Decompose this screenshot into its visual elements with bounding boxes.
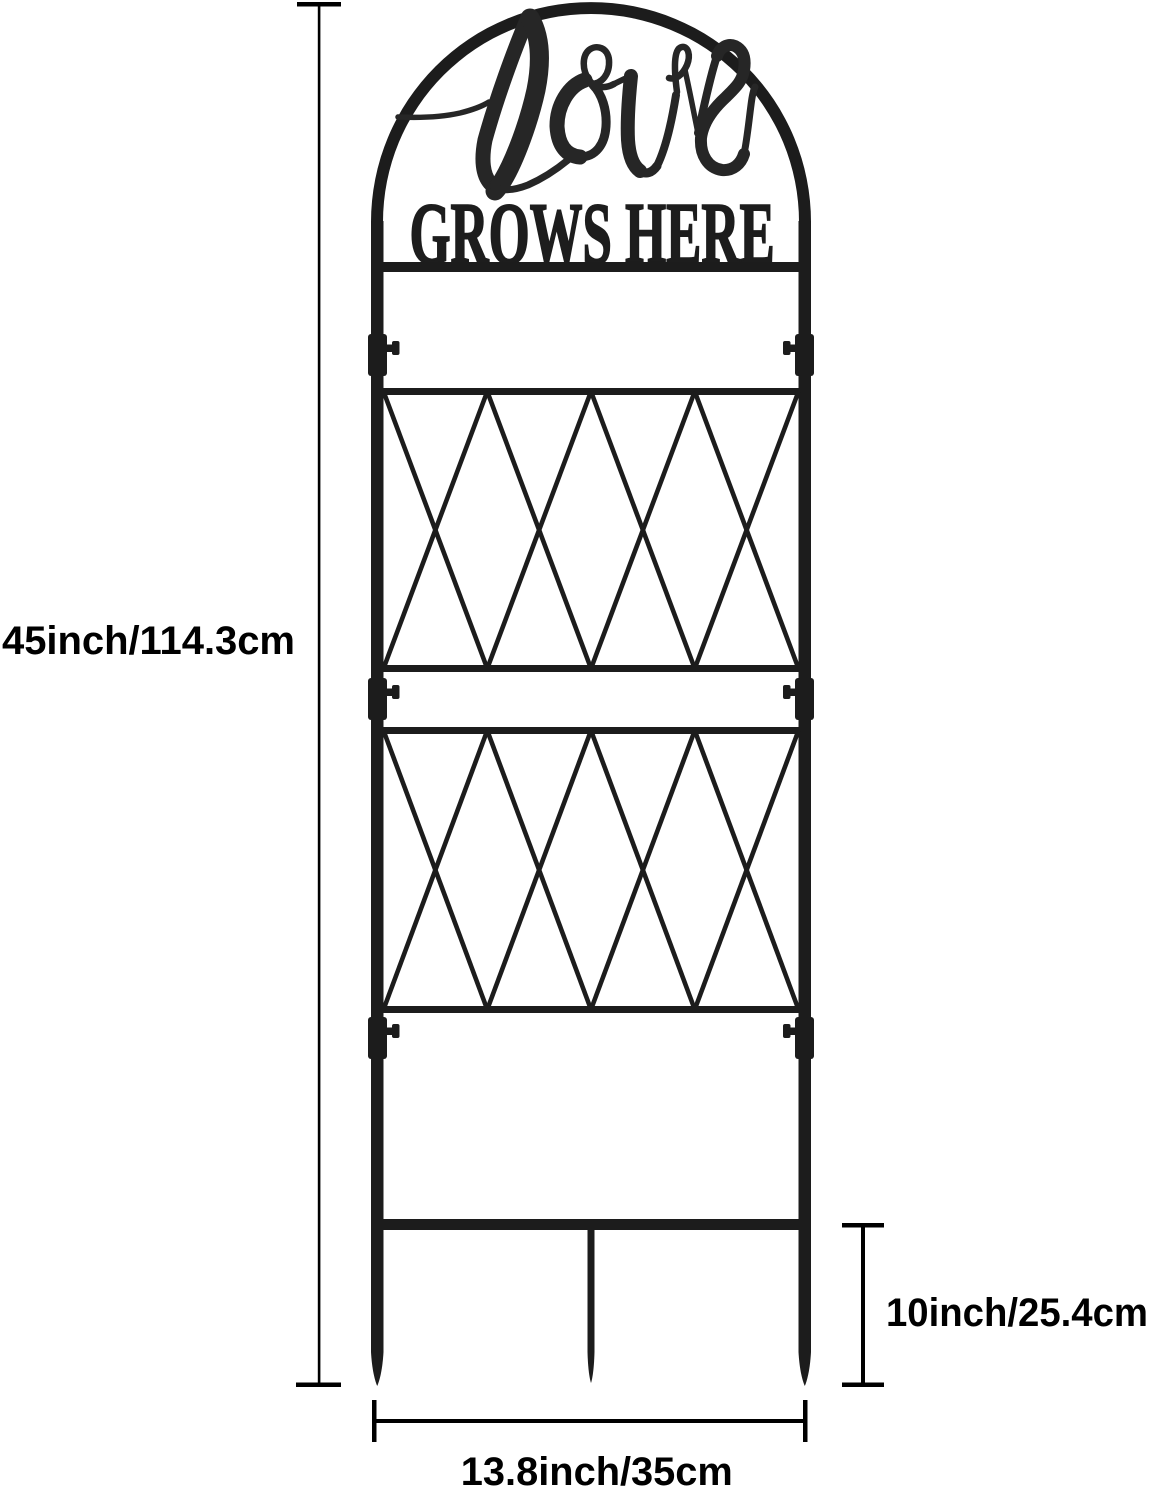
svg-text:10inch/25.4cm: 10inch/25.4cm	[886, 1291, 1148, 1335]
svg-text:45inch/114.3cm: 45inch/114.3cm	[2, 619, 295, 663]
svg-text:13.8inch/35cm: 13.8inch/35cm	[461, 1450, 733, 1491]
